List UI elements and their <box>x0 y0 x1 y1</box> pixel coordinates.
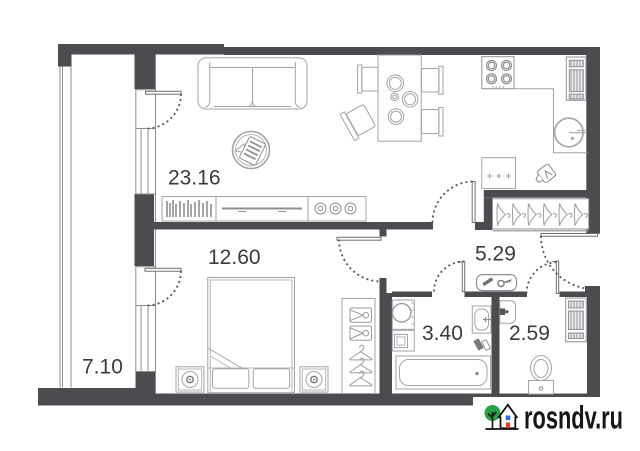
svg-text:5.29: 5.29 <box>475 243 516 266</box>
svg-text:23.16: 23.16 <box>168 167 221 190</box>
svg-text:3.40: 3.40 <box>422 322 463 345</box>
svg-text:7.10: 7.10 <box>82 356 123 379</box>
svg-text:12.60: 12.60 <box>208 246 261 269</box>
svg-text:rosndv.ru: rosndv.ru <box>524 400 623 436</box>
svg-text:2.59: 2.59 <box>509 322 550 345</box>
